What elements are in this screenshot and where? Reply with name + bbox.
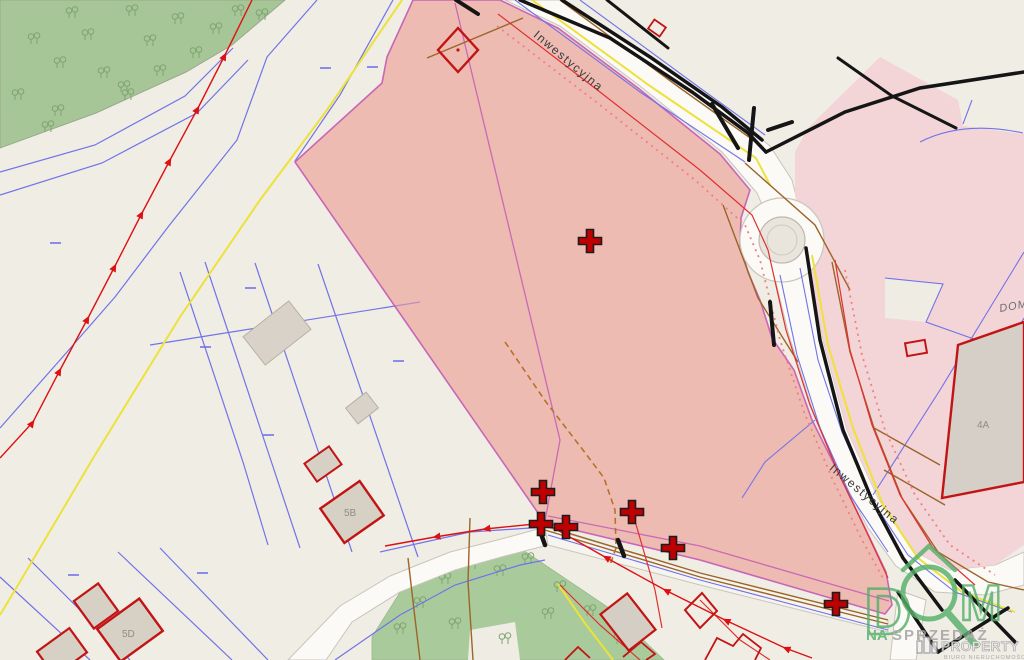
logo-letter-m: M xyxy=(960,575,1002,631)
building-label-5d: 5D xyxy=(122,629,135,640)
logo-text-na: NA xyxy=(866,627,888,644)
building-small-right xyxy=(905,340,927,356)
logo-text-biuro: BIURO NIERUCHOMOŚCI xyxy=(944,653,1024,660)
map-canvas: Inwestycyjna Inwestycyjna 5B 5D 4A DOM- … xyxy=(0,0,1024,660)
map-screenshot: Inwestycyjna Inwestycyjna 5B 5D 4A DOM- … xyxy=(0,0,1024,660)
building-label-4a: 4A xyxy=(977,420,990,431)
logo-text-property: PROPERTY xyxy=(941,639,1019,654)
building-label-5b: 5B xyxy=(344,508,357,519)
roundabout xyxy=(740,198,824,282)
